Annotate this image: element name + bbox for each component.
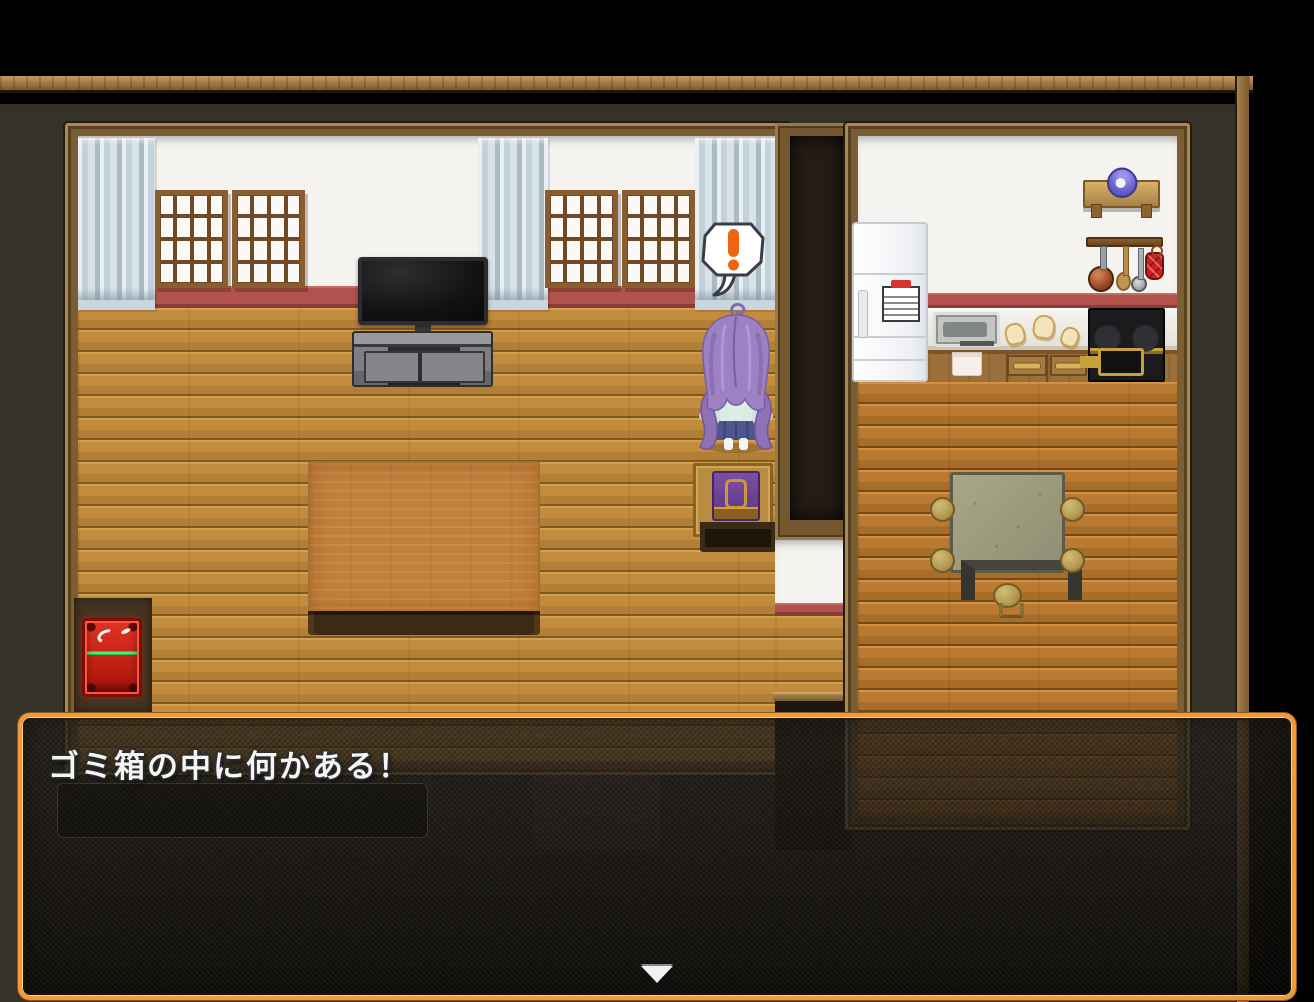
counter-food: [1003, 313, 1083, 351]
player-character: [695, 303, 777, 453]
passage-wall: [775, 540, 852, 603]
stool-bottom: [993, 583, 1022, 608]
copper-pan: [1088, 266, 1114, 292]
trash-can-mark: [95, 627, 116, 645]
window-4: [622, 190, 695, 288]
purple-book: [712, 471, 760, 521]
exclamation-balloon-icon: [700, 222, 766, 302]
continue-arrow-icon[interactable]: [641, 966, 673, 983]
living-room-table: [308, 461, 540, 613]
tv-stand: [352, 331, 493, 387]
message-content-backdrop: [57, 783, 428, 838]
stove: [1088, 308, 1165, 382]
window-3: [545, 190, 618, 288]
passage-lintel: [773, 692, 855, 701]
roof-beam-horizontal: [0, 76, 1253, 93]
game-screen: ゴミ箱の中に何かある！: [0, 0, 1314, 1002]
passage-baseboard: [775, 603, 852, 616]
window-1: [155, 190, 228, 288]
stool-left-1: [930, 497, 955, 522]
trash-can[interactable]: [82, 618, 142, 697]
stool-right-2: [1060, 548, 1085, 573]
fridge: [852, 222, 928, 382]
message-text: ゴミ箱の中に何かある！: [48, 741, 1248, 786]
curtain-left: [78, 138, 155, 310]
tv-screen: [358, 257, 488, 325]
kitchen-drawer-1: [1007, 355, 1047, 376]
passage-doorway: [790, 136, 843, 520]
oven-mitt: [1145, 252, 1164, 280]
fridge-note: [882, 286, 920, 322]
kitchen-towel: [952, 352, 982, 376]
ladle: [1131, 276, 1147, 292]
window-2: [232, 190, 305, 288]
wooden-spoon: [1116, 272, 1131, 291]
kitchen-sink: [933, 312, 1000, 347]
stool-right-1: [1060, 497, 1085, 522]
curtain-middle: [478, 138, 548, 310]
message-window[interactable]: ゴミ箱の中に何かある！: [18, 713, 1296, 1000]
kitchen-drawer-2: [1050, 355, 1087, 376]
stool-left-2: [930, 548, 955, 573]
passage-floor: [775, 616, 852, 692]
kitchen-table: [950, 472, 1065, 573]
